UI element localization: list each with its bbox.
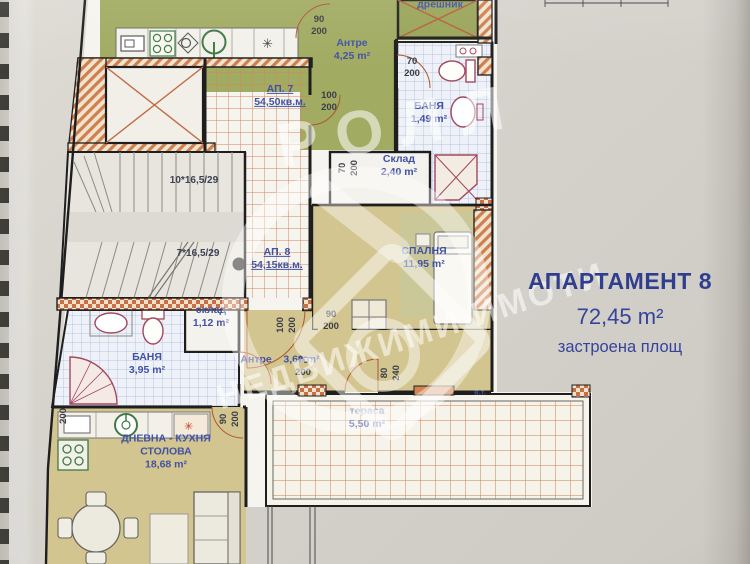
storage-240 bbox=[330, 152, 430, 205]
washing-machine-icon bbox=[115, 414, 137, 436]
toilet-icon bbox=[439, 60, 475, 82]
rug-icon bbox=[150, 514, 188, 564]
apartment-title-block: АПАРТАМЕНТ 8 72,45 m² застроена площ bbox=[500, 268, 740, 357]
bathroom-ap8 bbox=[52, 310, 271, 407]
oven-icon bbox=[121, 36, 144, 51]
photographed-floorplan-page: ✳ bbox=[0, 0, 750, 564]
column-dot bbox=[233, 258, 246, 271]
apartment-area: 72,45 m² bbox=[500, 304, 740, 330]
storage-112 bbox=[185, 308, 239, 352]
stairs bbox=[60, 152, 246, 298]
apartment-title: АПАРТАМЕНТ 8 bbox=[500, 268, 740, 295]
spiral-binding-holes bbox=[0, 2, 9, 564]
terrace bbox=[266, 385, 590, 564]
terrace-columns bbox=[268, 506, 315, 564]
dimension-ticks bbox=[545, 0, 668, 7]
bedside-table-icon bbox=[416, 234, 430, 246]
kitchen-counter: ✳ bbox=[58, 412, 210, 438]
apartment-area-caption: застроена площ bbox=[500, 338, 740, 357]
toilet-icon bbox=[142, 310, 164, 344]
shower-cabin-icon bbox=[435, 155, 477, 200]
ap7-kitchen-counter: ✳ bbox=[116, 28, 298, 60]
stove-icon bbox=[150, 31, 175, 56]
bed-icon bbox=[434, 232, 472, 324]
binding-shade bbox=[9, 0, 35, 564]
sink-icon bbox=[64, 416, 90, 433]
sofa-icon bbox=[194, 492, 240, 564]
hot-water-icon: ✳ bbox=[184, 421, 193, 433]
kitchen-symbol-icon: ✳ bbox=[262, 36, 273, 51]
dressing-room bbox=[398, 0, 478, 38]
living-room: ✳ bbox=[46, 407, 246, 564]
stove-icon bbox=[58, 440, 88, 470]
